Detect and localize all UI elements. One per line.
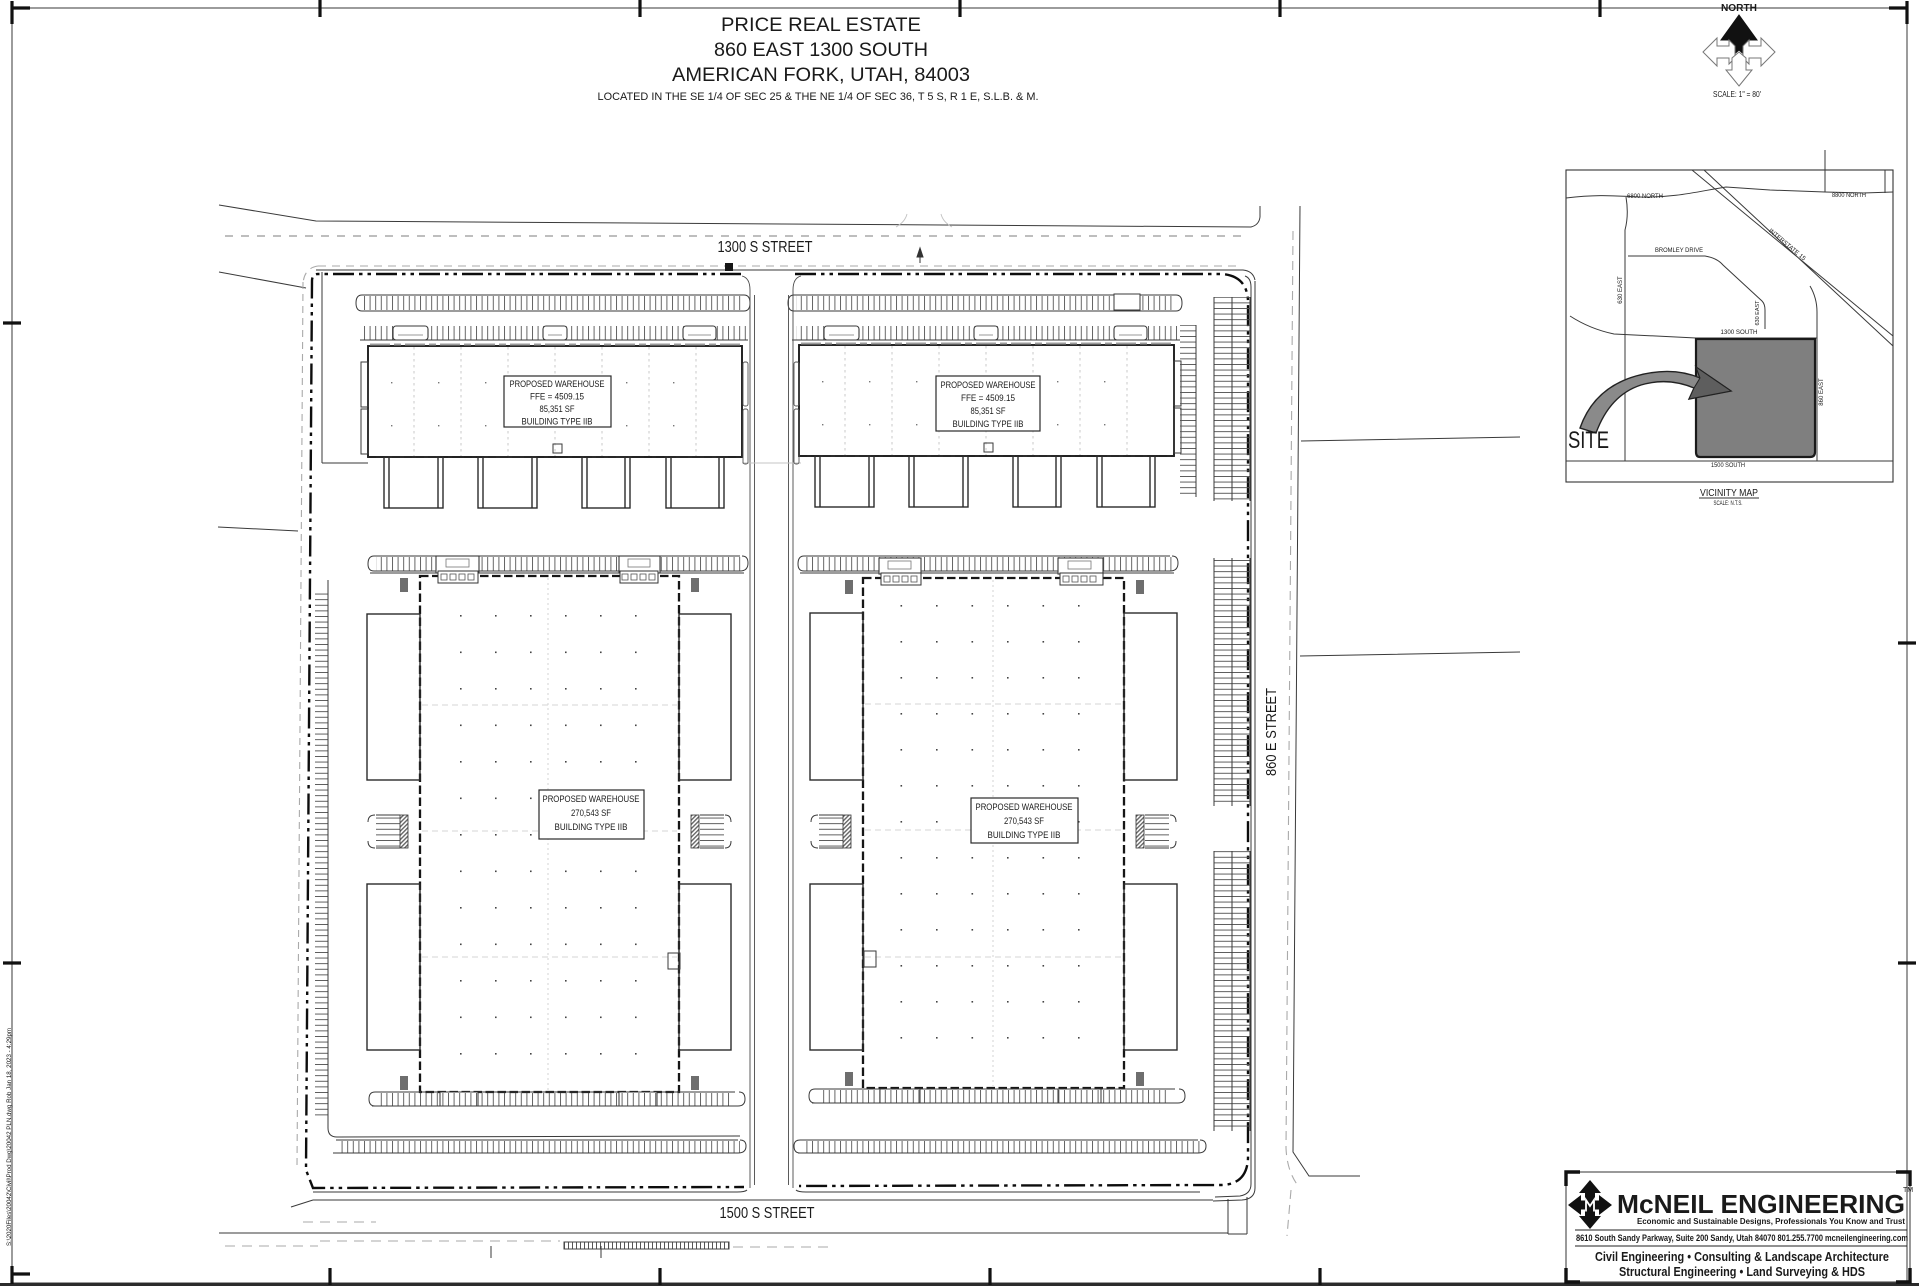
svg-text:BUILDING TYPE IIB: BUILDING TYPE IIB bbox=[522, 417, 593, 427]
svg-text:BUILDING TYPE IIB: BUILDING TYPE IIB bbox=[988, 830, 1061, 840]
svg-text:PRICE REAL ESTATE: PRICE REAL ESTATE bbox=[721, 14, 921, 36]
svg-text:860 E STREET: 860 E STREET bbox=[1263, 688, 1280, 776]
svg-text:Economic and Sustainable Desig: Economic and Sustainable Designs, Profes… bbox=[1637, 1216, 1905, 1226]
svg-text:FFE = 4509.15: FFE = 4509.15 bbox=[961, 393, 1015, 403]
svg-text:PROPOSED WAREHOUSE: PROPOSED WAREHOUSE bbox=[543, 794, 640, 804]
svg-text:1500 S STREET: 1500 S STREET bbox=[720, 1205, 815, 1222]
svg-text:85,351 SF: 85,351 SF bbox=[540, 404, 575, 414]
svg-text:LOCATED IN THE SE 1/4 OF SEC 2: LOCATED IN THE SE 1/4 OF SEC 25 & THE NE… bbox=[598, 91, 1039, 103]
svg-text:6800 NORTH: 6800 NORTH bbox=[1627, 194, 1663, 200]
svg-text:1300 SOUTH: 1300 SOUTH bbox=[1721, 329, 1758, 336]
svg-text:AMERICAN FORK, UTAH, 84003: AMERICAN FORK, UTAH, 84003 bbox=[672, 64, 970, 86]
svg-text:1500 SOUTH: 1500 SOUTH bbox=[1711, 463, 1745, 469]
svg-text:BUILDING TYPE IIB: BUILDING TYPE IIB bbox=[953, 419, 1024, 429]
svg-text:270,543 SF: 270,543 SF bbox=[571, 808, 611, 818]
svg-text:BROMLEY DRIVE: BROMLEY DRIVE bbox=[1655, 247, 1704, 254]
svg-text:860 EAST 1300 SOUTH: 860 EAST 1300 SOUTH bbox=[714, 39, 928, 61]
svg-text:FFE = 4509.15: FFE = 4509.15 bbox=[530, 392, 584, 402]
svg-text:SITE: SITE bbox=[1568, 427, 1609, 454]
svg-text:630 EAST: 630 EAST bbox=[1755, 300, 1761, 326]
svg-text:NORTH: NORTH bbox=[1721, 2, 1757, 14]
svg-text:Civil Engineering • Consulti: Civil Engineering • Consulting & Landsca… bbox=[1595, 1249, 1889, 1264]
svg-text:McNEIL ENGINEERING: McNEIL ENGINEERING bbox=[1617, 1189, 1905, 1219]
svg-text:SCALE: N.T.S.: SCALE: N.T.S. bbox=[1714, 501, 1743, 507]
svg-text:8610 South Sandy Parkway, Sui: 8610 South Sandy Parkway, Suite 200 Sand… bbox=[1576, 1233, 1908, 1243]
svg-text:BUILDING TYPE IIB: BUILDING TYPE IIB bbox=[555, 822, 628, 832]
svg-text:SCALE: 1" = 80': SCALE: 1" = 80' bbox=[1713, 89, 1761, 99]
svg-text:TM: TM bbox=[1903, 1187, 1913, 1194]
svg-text:1300 S STREET: 1300 S STREET bbox=[718, 239, 813, 256]
svg-text:85,351 SF: 85,351 SF bbox=[971, 406, 1006, 416]
svg-text:630 EAST: 630 EAST bbox=[1618, 276, 1624, 304]
svg-text:270,543 SF: 270,543 SF bbox=[1004, 816, 1044, 826]
svg-text:PROPOSED WAREHOUSE: PROPOSED WAREHOUSE bbox=[941, 380, 1036, 390]
svg-text:860 EAST: 860 EAST bbox=[1819, 378, 1825, 406]
svg-text:8800 NORTH: 8800 NORTH bbox=[1832, 193, 1866, 199]
svg-text:S:\2020Files\20042\Civil\Prod: S:\2020Files\20042\Civil\Prod Dwg\20042 … bbox=[6, 1028, 13, 1246]
svg-text:VICINITY MAP: VICINITY MAP bbox=[1700, 488, 1758, 499]
svg-text:PROPOSED WAREHOUSE: PROPOSED WAREHOUSE bbox=[976, 802, 1073, 812]
svg-text:PROPOSED WAREHOUSE: PROPOSED WAREHOUSE bbox=[510, 379, 605, 389]
svg-text:Structural Engineering • Lan: Structural Engineering • Land Surveying … bbox=[1619, 1264, 1865, 1279]
